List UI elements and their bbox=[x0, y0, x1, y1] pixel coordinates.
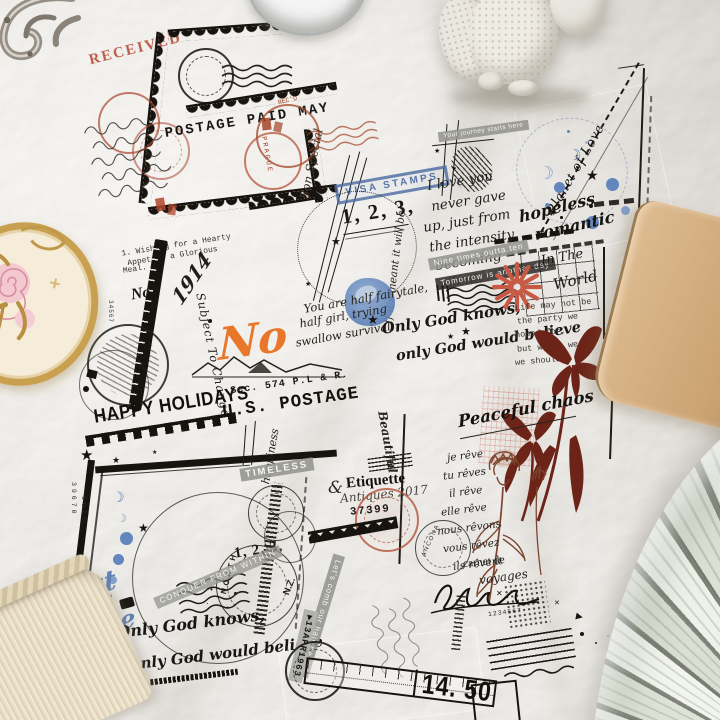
blue-dot bbox=[120, 532, 133, 545]
blue-dot bbox=[621, 206, 630, 215]
digits-column: 39670 bbox=[70, 482, 77, 517]
frame-line bbox=[251, 421, 256, 465]
serial-number: 34567 bbox=[107, 300, 113, 323]
crescent-moon-icon: ☽ bbox=[112, 490, 125, 504]
hatch-lines bbox=[367, 451, 413, 472]
no-orange-script: No bbox=[218, 314, 287, 368]
blue-dot bbox=[606, 178, 619, 191]
journey-label: Your journey starts here bbox=[438, 120, 529, 142]
ink-dots bbox=[580, 632, 584, 636]
ink-dot bbox=[576, 166, 578, 168]
tick-line bbox=[618, 64, 644, 69]
blue-dot bbox=[567, 130, 570, 133]
wavy-line bbox=[504, 666, 576, 676]
no-text: No bbox=[130, 285, 152, 304]
flatlay-photo: RECEIVED POSTAGE PAID MAY PRAGUE REC'D bbox=[0, 0, 720, 720]
cherub-figurine bbox=[440, 0, 605, 123]
cherub-head bbox=[550, 0, 606, 36]
ink-dot bbox=[208, 319, 212, 323]
red-postmark-ring bbox=[244, 132, 302, 190]
stamp-perforation-top bbox=[168, 24, 286, 42]
blue-dot bbox=[113, 554, 124, 565]
dot-matrix-noise bbox=[503, 579, 551, 630]
star-icon: ★ bbox=[112, 456, 120, 465]
red-seal-glyph bbox=[261, 118, 271, 131]
cherub-body bbox=[470, 0, 558, 84]
typewriter-line: Meal. bbox=[123, 264, 148, 276]
digits-column: 6015 bbox=[80, 496, 87, 524]
star-icon: ★ bbox=[367, 313, 379, 326]
barcode-strip bbox=[150, 669, 238, 686]
star-icon: ★ bbox=[152, 450, 157, 456]
silver-scroll-ornament bbox=[0, 0, 90, 102]
star-icon: ★ bbox=[80, 448, 93, 463]
star-icon: ★ bbox=[586, 168, 599, 182]
cherub-foot bbox=[508, 80, 538, 96]
star-icon: ★ bbox=[331, 237, 341, 248]
x-mark: ✕ bbox=[496, 590, 503, 598]
ink-dot bbox=[83, 386, 89, 392]
star-icon: ★ bbox=[305, 281, 311, 288]
frame-line bbox=[243, 425, 247, 465]
partial-frame-box bbox=[471, 680, 522, 720]
glyph-noise-column bbox=[451, 594, 466, 651]
star-icon: ★ bbox=[447, 333, 454, 341]
x-mark: ✕ bbox=[554, 600, 560, 607]
crescent-moon-icon: ☽ bbox=[568, 148, 581, 163]
crescent-moon-icon: ☽ bbox=[117, 514, 127, 525]
arrow-icon: ▶ bbox=[575, 611, 584, 621]
blue-dot bbox=[585, 141, 588, 144]
cherub-foot bbox=[478, 72, 504, 90]
hatch-lines bbox=[486, 625, 576, 670]
